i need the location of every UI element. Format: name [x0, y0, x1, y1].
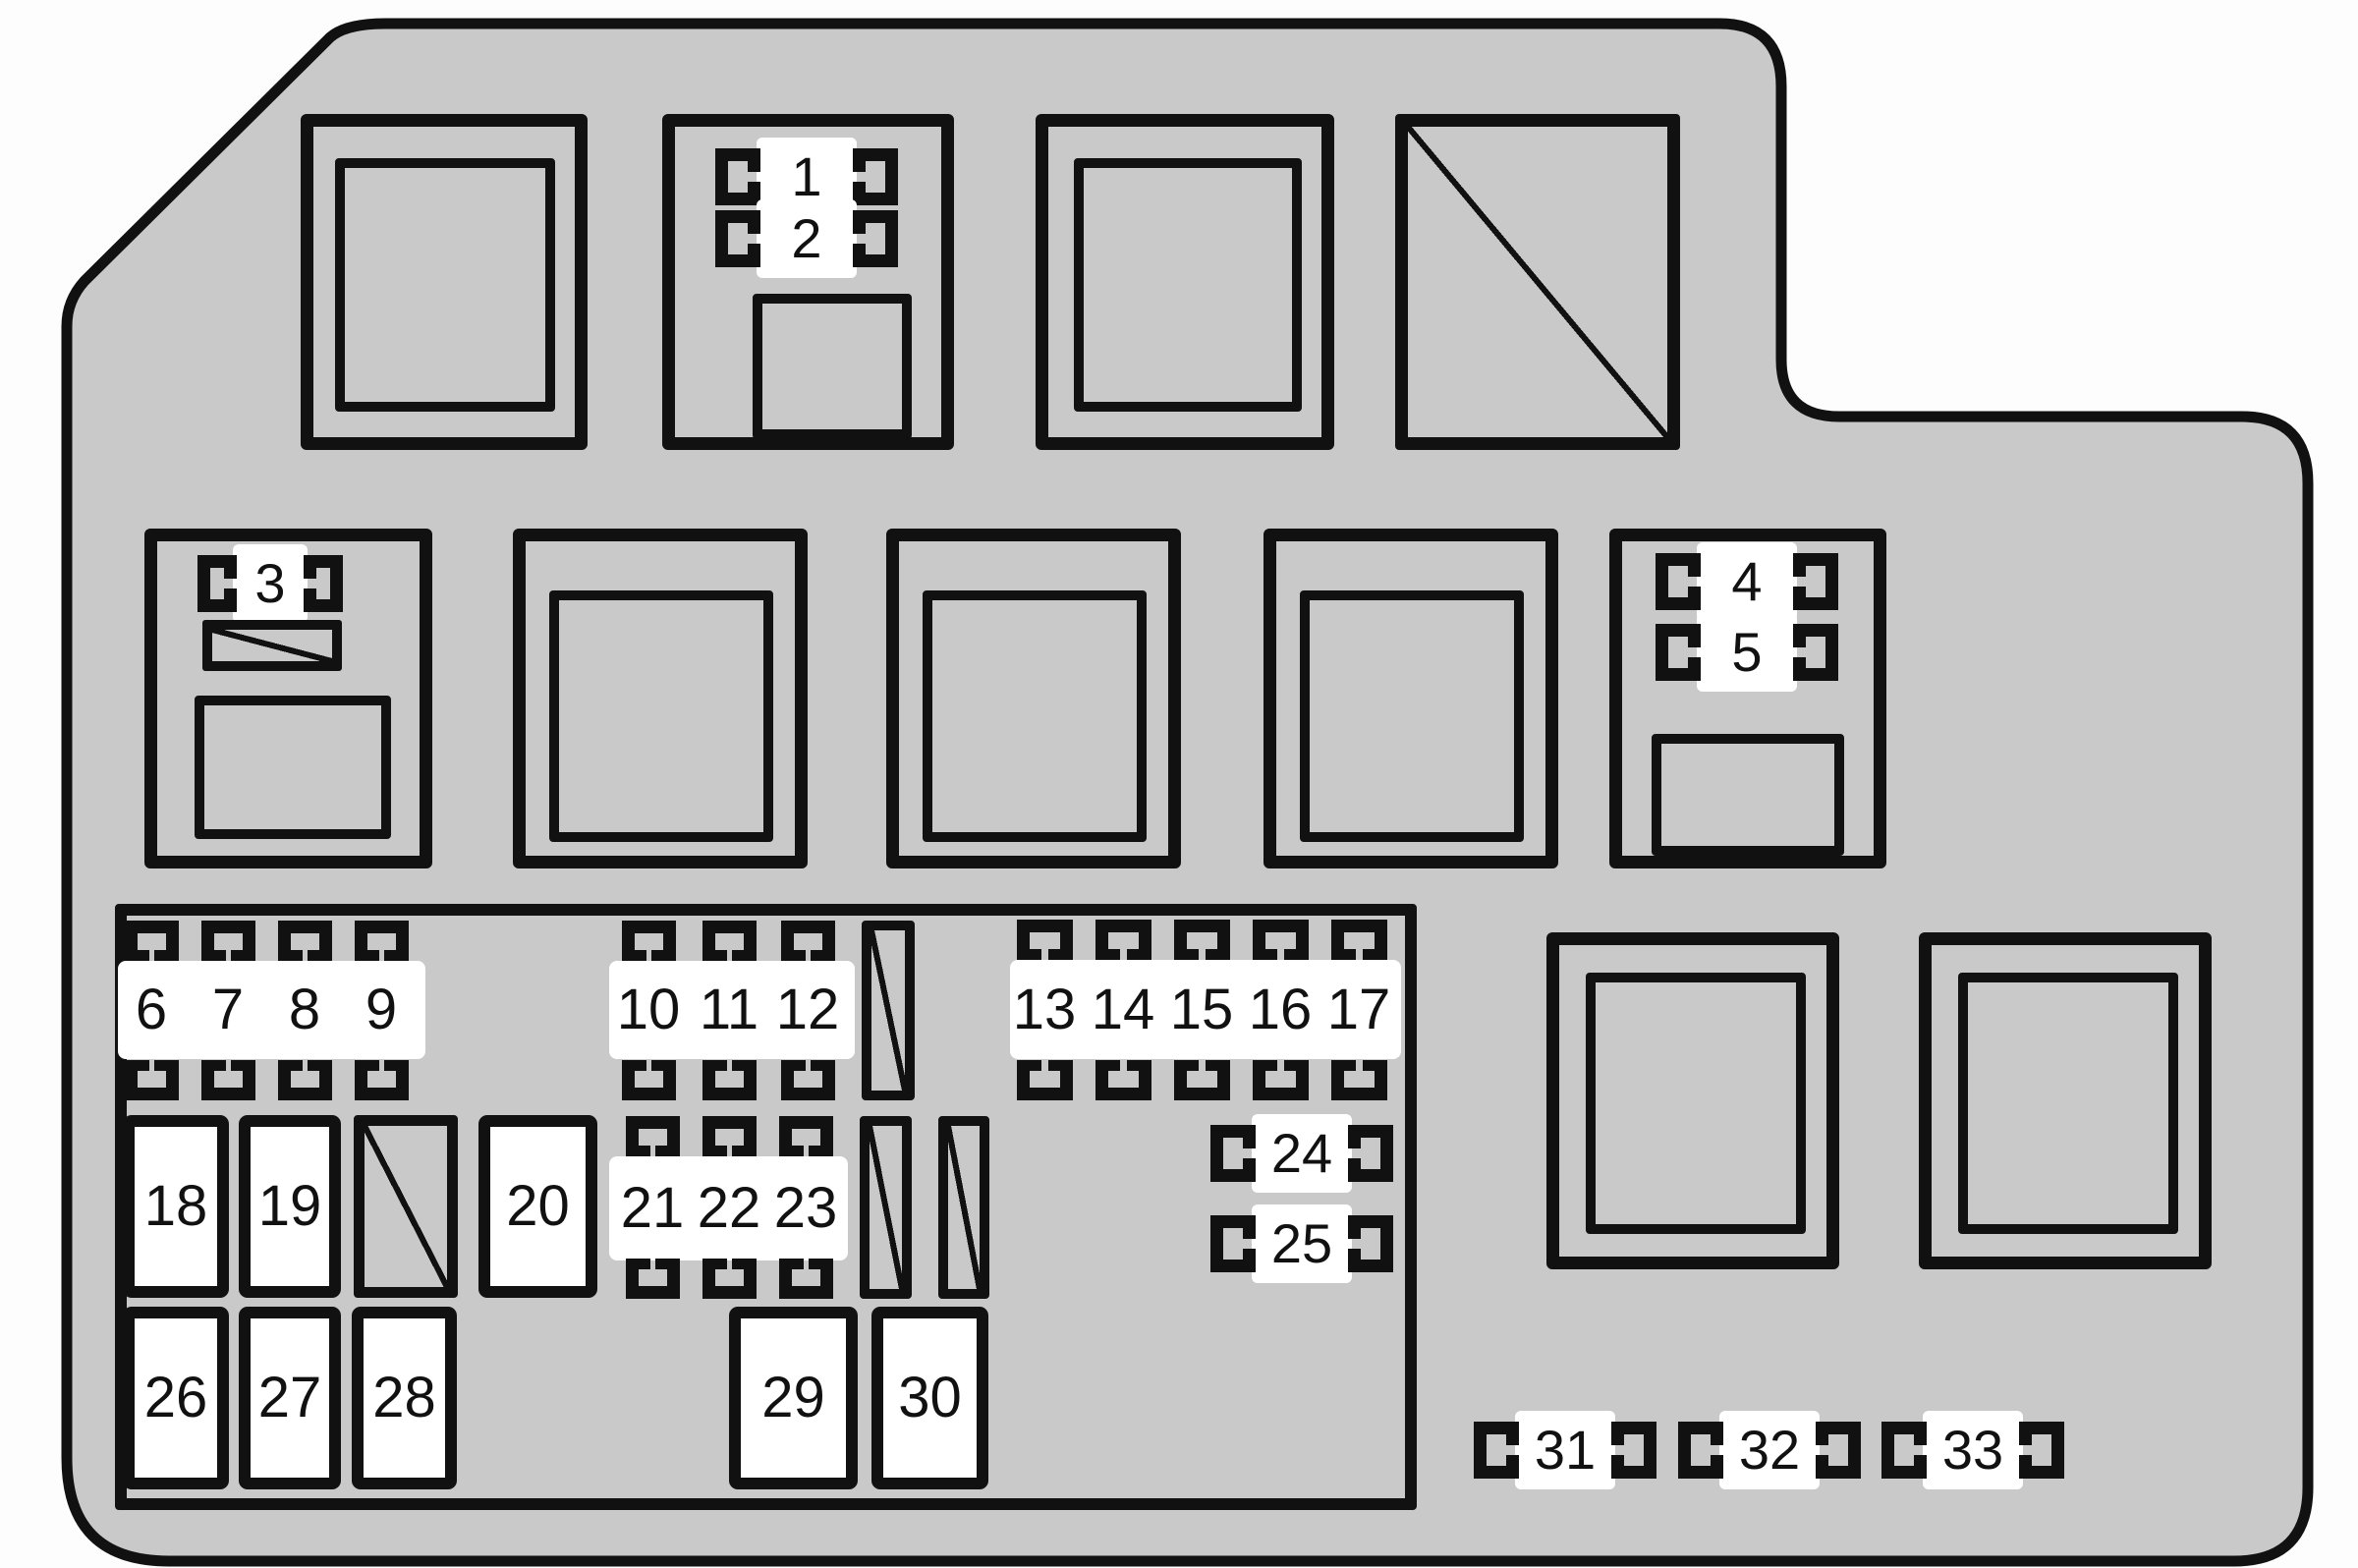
fuse-clip-left-icon — [715, 148, 760, 205]
fuse-number: 13 — [1003, 960, 1086, 1059]
relay-slot — [1300, 590, 1524, 842]
relay-box-mid-3 — [1263, 529, 1558, 868]
relay-slot — [1958, 973, 2178, 1234]
fuse-label-tab: 33 — [1923, 1411, 2023, 1489]
relay-slot — [1652, 734, 1844, 856]
fuse-label-tab: 24 — [1252, 1114, 1352, 1193]
fuse-label-tab: 2 — [757, 199, 857, 278]
fuse-number: 10 — [607, 961, 690, 1059]
fuse-label-tab: 4 — [1697, 542, 1797, 621]
fuse-clip-right-icon — [853, 148, 898, 205]
fuse-3: 3 — [197, 544, 343, 623]
fuse-number: 18 — [144, 1178, 208, 1235]
fuse-number: 29 — [761, 1370, 825, 1427]
relay-slot — [195, 696, 391, 839]
fuse-number: 15 — [1160, 960, 1243, 1059]
empty-slot-diagonal — [1395, 114, 1680, 450]
empty-slot-diagonal — [862, 921, 915, 1100]
empty-slot-diagonal — [354, 1115, 458, 1298]
relay-box-right-1 — [1546, 932, 1839, 1269]
fuse-number: 9 — [340, 961, 422, 1059]
fuse-clip-right-icon — [304, 555, 343, 612]
empty-slot-diagonal — [202, 620, 342, 671]
relay-box-right-2 — [1919, 932, 2212, 1269]
fuse-number: 26 — [144, 1370, 208, 1427]
fuse-clip-left-icon — [197, 555, 237, 612]
fuse-label-tab: 5 — [1697, 613, 1797, 692]
fuse-label-tab: 3 — [233, 544, 308, 623]
fuse-number: 19 — [258, 1178, 322, 1235]
slot-19: 19 — [239, 1115, 341, 1298]
slot-27: 27 — [239, 1307, 341, 1489]
fuse-31: 31 — [1474, 1411, 1656, 1489]
fuse-clip-right-icon — [1348, 1215, 1393, 1272]
fuse-number: 12 — [766, 961, 849, 1059]
fuse-clip-left-icon — [1656, 624, 1701, 681]
fuse-number: 30 — [898, 1370, 962, 1427]
fuse-number: 20 — [506, 1178, 570, 1235]
fuse-label-tab: 31 — [1515, 1411, 1615, 1489]
fuse-number: 8 — [263, 961, 346, 1059]
fuse-4: 4 — [1656, 542, 1838, 621]
empty-slot-diagonal — [938, 1116, 989, 1299]
fuse-number: 17 — [1318, 960, 1400, 1059]
fuse-24: 24 — [1210, 1114, 1393, 1193]
relay-box-fuses-4-5: 4 5 — [1609, 529, 1886, 868]
fuse-number: 23 — [764, 1156, 847, 1260]
fuse-clip-left-icon — [1474, 1422, 1519, 1479]
relay-box-mid-2 — [886, 529, 1181, 868]
slot-28: 28 — [352, 1307, 457, 1489]
fuse-number: 22 — [688, 1156, 770, 1260]
fuse-clip-right-icon — [1793, 624, 1838, 681]
relay-slot — [549, 590, 773, 842]
fuse-clip-right-icon — [1793, 553, 1838, 610]
fuse-number: 11 — [688, 961, 770, 1059]
fuse-number: 27 — [258, 1370, 322, 1427]
fuse-5: 5 — [1656, 613, 1838, 692]
fuse-clip-left-icon — [1678, 1422, 1723, 1479]
fuse-number: 7 — [187, 961, 269, 1059]
fuse-2: 2 — [715, 199, 898, 278]
fuse-label-tab: 25 — [1252, 1204, 1352, 1283]
fuse-clip-right-icon — [853, 210, 898, 267]
empty-slot-diagonal — [860, 1116, 912, 1299]
fuse-clip-right-icon — [1348, 1125, 1393, 1182]
slot-26: 26 — [123, 1307, 229, 1489]
slot-30: 30 — [871, 1307, 988, 1489]
relay-slot — [923, 590, 1147, 842]
slot-20: 20 — [478, 1115, 597, 1298]
relay-box-fuses-1-2: 1 2 — [662, 114, 954, 450]
fuse-clip-left-icon — [1881, 1422, 1927, 1479]
relay-slot — [335, 158, 555, 412]
fuse-number: 28 — [372, 1370, 436, 1427]
fuse-box-diagram: 1 2 3 4 — [0, 0, 2358, 1568]
fuse-number: 21 — [611, 1156, 694, 1260]
fuse-label-tab: 32 — [1719, 1411, 1820, 1489]
fuse-32: 32 — [1678, 1411, 1861, 1489]
fuse-clip-left-icon — [1210, 1215, 1256, 1272]
fuse-clip-right-icon — [2019, 1422, 2064, 1479]
slot-29: 29 — [729, 1307, 858, 1489]
relay-slot — [1586, 973, 1806, 1234]
fuse-clip-left-icon — [1210, 1125, 1256, 1182]
relay-box-fuse-3: 3 — [144, 529, 432, 868]
fuse-clip-right-icon — [1816, 1422, 1861, 1479]
fuse-clip-right-icon — [1611, 1422, 1656, 1479]
relay-slot — [1074, 158, 1302, 412]
fuse-number: 14 — [1082, 960, 1164, 1059]
relay-slot — [753, 294, 912, 439]
slot-18: 18 — [123, 1115, 229, 1298]
fuse-33: 33 — [1881, 1411, 2064, 1489]
fuse-25: 25 — [1210, 1204, 1393, 1283]
relay-box-top-1 — [301, 114, 588, 450]
fuse-number: 16 — [1239, 960, 1321, 1059]
relay-box-top-2 — [1036, 114, 1334, 450]
relay-box-mid-1 — [513, 529, 808, 868]
fuse-clip-left-icon — [715, 210, 760, 267]
fuse-number: 6 — [110, 961, 193, 1059]
fuse-clip-left-icon — [1656, 553, 1701, 610]
